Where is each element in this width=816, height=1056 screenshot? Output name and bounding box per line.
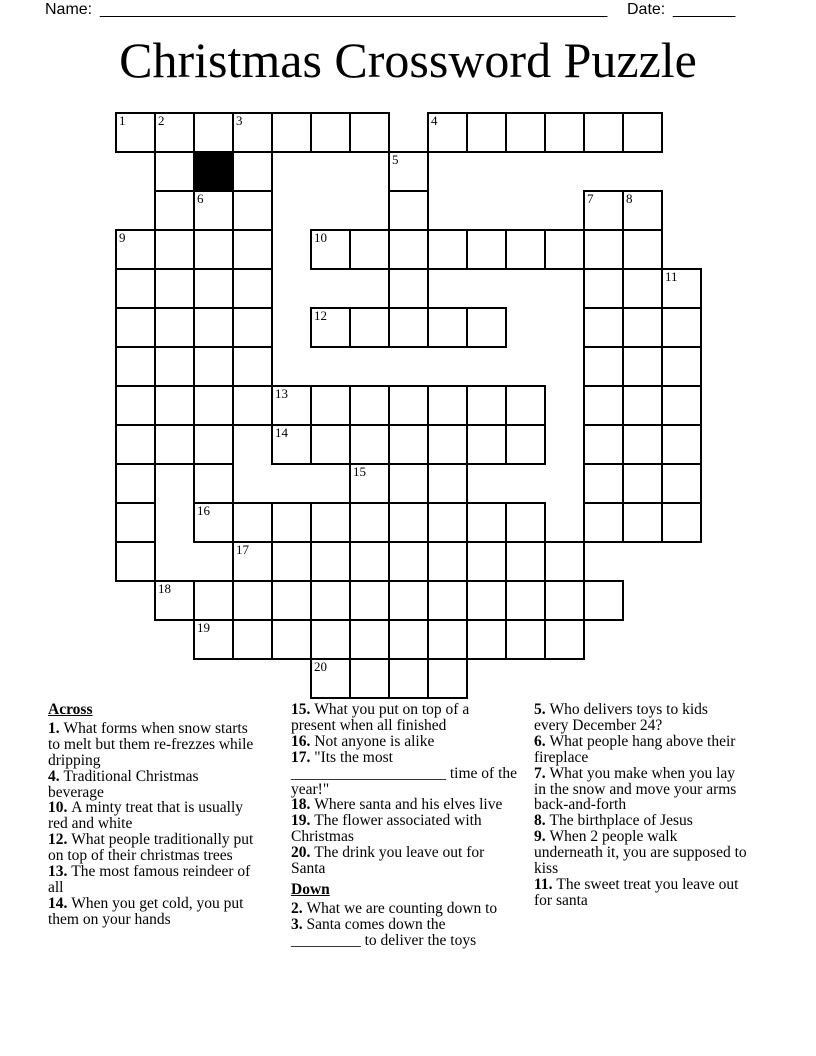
clue-number: 14 [275, 426, 288, 440]
grid-cell[interactable] [115, 424, 156, 465]
clue-num-label: 16. [291, 733, 314, 750]
grid-cell[interactable] [466, 112, 507, 153]
grid-cell[interactable] [349, 502, 390, 543]
grid-cell[interactable] [466, 229, 507, 270]
clue-number: 4 [431, 114, 438, 128]
grid-cell[interactable] [622, 229, 663, 270]
grid-cell[interactable] [232, 619, 273, 660]
grid-cell[interactable] [271, 580, 312, 621]
grid-cell[interactable]: 15 [349, 463, 390, 504]
crossword-grid: 1234567891011121314151617181920 [115, 112, 702, 699]
grid-cell[interactable]: 6 [193, 190, 234, 231]
clue-number: 5 [392, 153, 399, 167]
clue-8: 8. The birthplace of Jesus [534, 813, 782, 829]
grid-cell[interactable] [388, 502, 429, 543]
clue-15: 15. What you put on top of a present whe… [291, 702, 539, 734]
grid-cell[interactable] [310, 580, 351, 621]
clue-number: 20 [314, 660, 327, 674]
grid-cell[interactable] [427, 580, 468, 621]
clue-6: 6. What people hang above their fireplac… [534, 734, 782, 766]
grid-cell[interactable] [271, 541, 312, 582]
grid-cell[interactable] [622, 112, 663, 153]
grid-cell[interactable] [388, 580, 429, 621]
clue-14: 14. When you get cold, you put them on y… [48, 896, 296, 928]
grid-cell[interactable] [154, 385, 195, 426]
clue-num-label: 12. [48, 831, 71, 848]
grid-cell[interactable] [193, 385, 234, 426]
grid-cell[interactable] [193, 580, 234, 621]
grid-cell[interactable] [115, 502, 156, 543]
grid-cell[interactable] [544, 541, 585, 582]
grid-cell[interactable] [505, 502, 546, 543]
grid-cell[interactable] [115, 268, 156, 309]
grid-cell[interactable] [154, 307, 195, 348]
grid-cell[interactable] [232, 502, 273, 543]
clue-number: 6 [197, 192, 204, 206]
clue-2: 2. What we are counting down to [291, 901, 539, 917]
grid-cell[interactable] [583, 346, 624, 387]
grid-cell[interactable] [232, 580, 273, 621]
clue-num-label: 2. [291, 900, 307, 917]
grid-cell[interactable] [661, 463, 702, 504]
grid-cell[interactable] [388, 463, 429, 504]
grid-cell[interactable] [427, 619, 468, 660]
clue-number: 19 [197, 621, 210, 635]
across-clue-list-continued: 15. What you put on top of a present whe… [291, 702, 539, 877]
clue-3: 3. Santa comes down the _________ to del… [291, 917, 539, 949]
grid-cell[interactable] [583, 112, 624, 153]
clue-number: 10 [314, 231, 327, 245]
grid-cell[interactable]: 18 [154, 580, 195, 621]
clue-number: 11 [665, 270, 678, 284]
grid-cell[interactable] [349, 580, 390, 621]
clue-5: 5. Who delivers toys to kids every Decem… [534, 702, 782, 734]
clue-number: 18 [158, 582, 171, 596]
grid-cell[interactable] [193, 307, 234, 348]
grid-cell[interactable] [583, 229, 624, 270]
grid-cell[interactable] [154, 190, 195, 231]
grid-cell[interactable] [661, 502, 702, 543]
grid-cell[interactable] [427, 463, 468, 504]
grid-cell[interactable] [115, 541, 156, 582]
grid-cell[interactable] [193, 112, 234, 153]
clue-20: 20. The drink you leave out for Santa [291, 845, 539, 877]
grid-cell[interactable]: 14 [271, 424, 312, 465]
grid-cell[interactable] [427, 502, 468, 543]
clues-column-middle: 15. What you put on top of a present whe… [291, 702, 539, 949]
grid-cell[interactable] [193, 268, 234, 309]
clue-num-label: 7. [534, 765, 550, 782]
clue-num-label: 3. [291, 916, 307, 933]
grid-cell[interactable] [388, 541, 429, 582]
clues-column-across: Across 1. What forms when snow starts to… [48, 702, 296, 928]
across-clue-list: 1. What forms when snow starts to melt b… [48, 721, 296, 928]
name-label: Name: [45, 1, 92, 19]
grid-cell[interactable] [622, 346, 663, 387]
across-header: Across [48, 702, 296, 718]
grid-cell[interactable] [232, 385, 273, 426]
grid-cell[interactable] [115, 385, 156, 426]
grid-cell[interactable] [466, 541, 507, 582]
clue-num-label: 14. [48, 895, 71, 912]
grid-cell[interactable] [388, 658, 429, 699]
clue-number: 1 [119, 114, 126, 128]
worksheet-page: { "header": { "name_label": "Name:", "na… [0, 0, 816, 1056]
grid-cell[interactable] [505, 619, 546, 660]
grid-cell[interactable] [505, 424, 546, 465]
grid-cell[interactable] [466, 307, 507, 348]
grid-cell[interactable] [427, 385, 468, 426]
grid-cell[interactable]: 2 [154, 112, 195, 153]
clue-num-label: 19. [291, 812, 314, 829]
grid-cell[interactable] [193, 424, 234, 465]
grid-cell[interactable]: 10 [310, 229, 351, 270]
clue-number: 17 [236, 543, 249, 557]
grid-cell[interactable] [505, 229, 546, 270]
grid-cell[interactable] [622, 385, 663, 426]
grid-cell[interactable]: 17 [232, 541, 273, 582]
grid-cell[interactable] [622, 502, 663, 543]
grid-cell[interactable]: 11 [661, 268, 702, 309]
grid-cell[interactable] [349, 112, 390, 153]
grid-cell[interactable] [310, 541, 351, 582]
clue-num-label: 5. [534, 701, 550, 718]
grid-cell[interactable] [115, 463, 156, 504]
grid-cell[interactable] [154, 424, 195, 465]
grid-cell[interactable]: 8 [622, 190, 663, 231]
grid-cell[interactable] [310, 619, 351, 660]
grid-cell[interactable] [193, 346, 234, 387]
clue-11: 11. The sweet treat you leave out for sa… [534, 877, 782, 909]
grid-cell[interactable]: 20 [310, 658, 351, 699]
grid-cell[interactable] [505, 112, 546, 153]
grid-cell[interactable] [232, 151, 273, 192]
grid-cell[interactable] [583, 385, 624, 426]
grid-cell[interactable] [232, 268, 273, 309]
clue-num-label: 9. [534, 828, 550, 845]
clue-num-label: 8. [534, 812, 550, 829]
grid-cell[interactable] [154, 268, 195, 309]
clue-number: 13 [275, 387, 288, 401]
grid-cell[interactable] [466, 580, 507, 621]
clue-number: 8 [626, 192, 633, 206]
grid-cell[interactable]: 7 [583, 190, 624, 231]
grid-cell[interactable] [544, 580, 585, 621]
grid-cell[interactable] [388, 619, 429, 660]
clue-num-label: 13. [48, 863, 71, 880]
grid-cell[interactable] [349, 619, 390, 660]
grid-cell[interactable] [427, 229, 468, 270]
grid-cell[interactable] [466, 424, 507, 465]
grid-cell[interactable] [505, 580, 546, 621]
grid-cell[interactable]: 13 [271, 385, 312, 426]
grid-cell[interactable] [388, 190, 429, 231]
grid-cell[interactable] [232, 229, 273, 270]
clue-num-label: 1. [48, 720, 64, 737]
down-clue-list-continued: 5. Who delivers toys to kids every Decem… [534, 702, 782, 909]
date-blank-line[interactable]: _______ [673, 1, 735, 19]
grid-cell[interactable] [232, 190, 273, 231]
grid-cell[interactable] [154, 151, 195, 192]
grid-cell[interactable] [154, 346, 195, 387]
page-title: Christmas Crossword Puzzle [0, 32, 816, 88]
clue-13: 13. The most famous reindeer of all [48, 864, 296, 896]
grid-cell[interactable] [310, 112, 351, 153]
clue-num-label: 20. [291, 844, 314, 861]
grid-cell[interactable] [544, 619, 585, 660]
grid-cell[interactable]: 9 [115, 229, 156, 270]
grid-cell[interactable] [115, 307, 156, 348]
grid-cell[interactable] [622, 424, 663, 465]
grid-cell[interactable] [505, 385, 546, 426]
grid-cell[interactable]: 12 [310, 307, 351, 348]
grid-cell[interactable] [349, 424, 390, 465]
grid-cell[interactable] [310, 385, 351, 426]
grid-cell[interactable] [544, 229, 585, 270]
grid-cell[interactable]: 19 [193, 619, 234, 660]
grid-cell[interactable] [349, 307, 390, 348]
grid-cell[interactable] [349, 229, 390, 270]
grid-cell[interactable] [310, 502, 351, 543]
grid-cell[interactable] [622, 463, 663, 504]
grid-cell[interactable] [466, 502, 507, 543]
clue-10: 10. A minty treat that is usually red an… [48, 800, 296, 832]
grid-cell[interactable] [427, 541, 468, 582]
grid-cell[interactable] [583, 424, 624, 465]
clue-9: 9. When 2 people walk underneath it, you… [534, 829, 782, 877]
down-header: Down [291, 882, 539, 898]
grid-cell[interactable] [388, 424, 429, 465]
clue-12: 12. What people traditionally put on top… [48, 832, 296, 864]
grid-cell[interactable] [271, 619, 312, 660]
grid-cell[interactable] [466, 385, 507, 426]
down-clue-list: 2. What we are counting down to3. Santa … [291, 901, 539, 949]
grid-cell[interactable]: 16 [193, 502, 234, 543]
clue-4: 4. Traditional Christmas beverage [48, 769, 296, 801]
grid-cell[interactable] [154, 229, 195, 270]
grid-cell[interactable]: 1 [115, 112, 156, 153]
grid-cell[interactable] [232, 307, 273, 348]
grid-cell[interactable] [271, 502, 312, 543]
grid-cell[interactable] [310, 424, 351, 465]
grid-cell[interactable] [115, 346, 156, 387]
name-blank-line[interactable]: ________________________________________… [100, 1, 607, 19]
grid-cell[interactable] [349, 658, 390, 699]
grid-cell[interactable] [193, 229, 234, 270]
grid-cell[interactable] [583, 268, 624, 309]
grid-cell[interactable] [388, 229, 429, 270]
grid-cell[interactable] [466, 619, 507, 660]
grid-cell[interactable] [622, 268, 663, 309]
grid-cell[interactable] [427, 424, 468, 465]
black-cell [193, 151, 234, 192]
grid-cell[interactable] [388, 385, 429, 426]
grid-cell[interactable] [622, 307, 663, 348]
grid-cell[interactable] [544, 112, 585, 153]
grid-cell[interactable]: 3 [232, 112, 273, 153]
grid-cell[interactable] [349, 541, 390, 582]
clue-7: 7. What you make when you lay in the sno… [534, 766, 782, 814]
grid-cell[interactable] [388, 307, 429, 348]
grid-cell[interactable] [583, 580, 624, 621]
clue-number: 2 [158, 114, 165, 128]
clue-num-label: 10. [48, 799, 71, 816]
clue-number: 3 [236, 114, 243, 128]
grid-cell[interactable] [661, 385, 702, 426]
clue-num-label: 4. [48, 768, 64, 785]
clue-num-label: 18. [291, 796, 314, 813]
clue-number: 15 [353, 465, 366, 479]
clue-num-label: 6. [534, 733, 550, 750]
clue-num-label: 17. [291, 749, 314, 766]
grid-cell[interactable] [271, 112, 312, 153]
grid-cell[interactable] [505, 541, 546, 582]
grid-cell[interactable] [661, 424, 702, 465]
clues-column-down: 5. Who delivers toys to kids every Decem… [534, 702, 782, 909]
clue-1: 1. What forms when snow starts to melt b… [48, 721, 296, 769]
grid-cell[interactable] [427, 307, 468, 348]
grid-cell[interactable] [583, 502, 624, 543]
grid-cell[interactable] [388, 268, 429, 309]
grid-cell[interactable] [583, 463, 624, 504]
grid-cell[interactable] [427, 658, 468, 699]
clue-18: 18. Where santa and his elves live [291, 797, 539, 813]
clue-17: 17. "Its the most ____________________ t… [291, 750, 539, 798]
date-label: Date: [627, 1, 665, 19]
grid-cell[interactable]: 4 [427, 112, 468, 153]
clue-19: 19. The flower associated with Christmas [291, 813, 539, 845]
clue-16: 16. Not anyone is alike [291, 734, 539, 750]
grid-cell[interactable]: 5 [388, 151, 429, 192]
grid-cell[interactable] [661, 346, 702, 387]
grid-cell[interactable] [349, 385, 390, 426]
clue-number: 12 [314, 309, 327, 323]
grid-cell[interactable] [232, 346, 273, 387]
clue-number: 7 [587, 192, 594, 206]
grid-cell[interactable] [583, 307, 624, 348]
clue-num-label: 11. [534, 876, 556, 893]
grid-cell[interactable] [661, 307, 702, 348]
clue-number: 9 [119, 231, 126, 245]
clue-num-label: 15. [291, 701, 314, 718]
clue-number: 16 [197, 504, 210, 518]
grid-cell[interactable] [193, 463, 234, 504]
